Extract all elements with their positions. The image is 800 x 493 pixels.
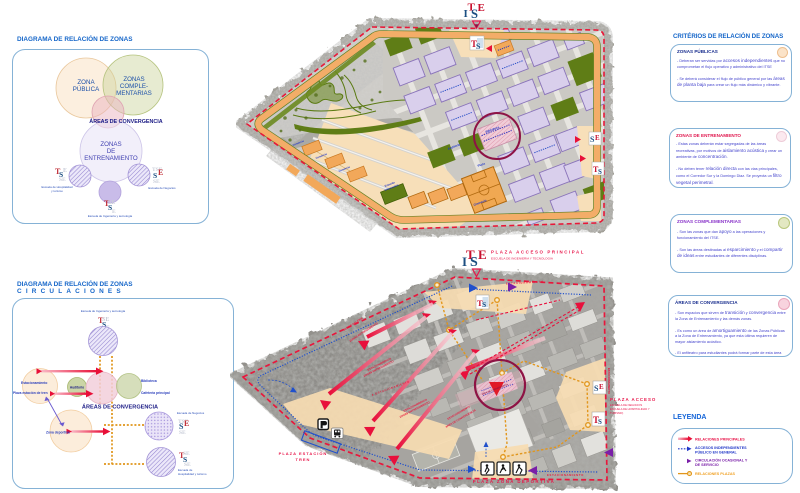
svg-text:PLAZA ACCESO: PLAZA ACCESO — [610, 397, 656, 402]
svg-text:DE SERVICIO: DE SERVICIO — [695, 463, 719, 467]
svg-text:ESCUELA DE NEGOCIOS: ESCUELA DE NEGOCIOS — [610, 403, 642, 407]
svg-text:RELACIONES PRINCIPALES: RELACIONES PRINCIPALES — [695, 438, 745, 442]
svg-text:Escuela de Ingeniería y tecnol: Escuela de Ingeniería y tecnología — [81, 309, 126, 313]
svg-text:S: S — [598, 418, 602, 426]
svg-text:Escuela de Negocios: Escuela de Negocios — [177, 411, 205, 415]
svg-text:Estacionamiento: Estacionamiento — [21, 381, 47, 385]
svg-text:ESTACIONAMIENTO: ESTACIONAMIENTO — [607, 368, 611, 394]
svg-text:SE: SE — [59, 177, 66, 183]
svg-text:ACCESOS INDEPENDIENTES: ACCESOS INDEPENDIENTES — [695, 446, 747, 450]
svg-text:Auditorio: Auditorio — [70, 386, 84, 390]
svg-text:ÁREAS DE CONVERGENCIA: ÁREAS DE CONVERGENCIA — [89, 118, 162, 125]
svg-text:ESCUELA DE INGENIERIA Y TECNOL: ESCUELA DE INGENIERIA Y TECNOLOGIA — [491, 257, 554, 261]
svg-text:PLAZA ESTACIÓN: PLAZA ESTACIÓN — [279, 451, 328, 456]
svg-text:Hospitalidad y turismo: Hospitalidad y turismo — [178, 472, 207, 476]
svg-text:Escuela de Ingeniería y tecnol: Escuela de Ingeniería y tecnología — [88, 214, 133, 218]
svg-text:E: E — [158, 168, 163, 177]
svg-text:MENTARIAS: MENTARIAS — [116, 90, 152, 97]
svg-text:SE: SE — [153, 179, 160, 185]
svg-text:E S T A C I O N A M I E N T O: E S T A C I O N A M I E N T O — [547, 473, 583, 477]
svg-text:ÁREAS DE CONVERGENCIA: ÁREAS DE CONVERGENCIA — [82, 404, 158, 411]
svg-text:Escuela de Negocios: Escuela de Negocios — [148, 186, 176, 190]
svg-text:E: E — [478, 247, 487, 262]
svg-text:PLAZA ZONA DEPORTIVA: PLAZA ZONA DEPORTIVA — [473, 479, 555, 484]
svg-text:ENTRENAMIENTO: ENTRENAMIENTO — [84, 155, 138, 162]
svg-text:Cafeteria principal: Cafeteria principal — [141, 391, 170, 395]
svg-text:E: E — [184, 419, 189, 428]
svg-text:ZONAS: ZONAS — [123, 76, 144, 83]
svg-text:PLAZA ACCESO PRINCIPAL: PLAZA ACCESO PRINCIPAL — [491, 250, 585, 255]
svg-text:TURISMO): TURISMO) — [610, 411, 623, 415]
svg-text:S: S — [482, 300, 486, 309]
svg-text:E: E — [63, 168, 67, 174]
svg-text:TREN: TREN — [296, 457, 311, 462]
svg-text:COMPLE-: COMPLE- — [120, 83, 148, 90]
svg-text:SE: SE — [179, 430, 186, 436]
svg-text:DE: DE — [107, 148, 116, 155]
svg-text:ZONAS: ZONAS — [100, 141, 121, 148]
svg-text:Zona deportiva: Zona deportiva — [46, 431, 70, 435]
svg-text:ZONA: ZONA — [77, 79, 95, 86]
svg-text:S: S — [476, 42, 481, 51]
svg-text:S: S — [470, 255, 478, 270]
svg-text:ESCUELA DE HOSPITALIDAD Y: ESCUELA DE HOSPITALIDAD Y — [610, 407, 650, 411]
svg-text:E: E — [478, 2, 485, 14]
svg-text:PÚBLICO EN GENERAL: PÚBLICO EN GENERAL — [695, 449, 738, 454]
svg-text:PÚBLICA: PÚBLICA — [73, 86, 100, 93]
svg-text:RELACIONES PLAZAS: RELACIONES PLAZAS — [695, 472, 735, 476]
svg-text:y turismo: y turismo — [51, 189, 63, 193]
svg-text:CIRCULACIÓN OCASIONAL Y: CIRCULACIÓN OCASIONAL Y — [695, 457, 748, 462]
svg-text:Plaza estación de tren: Plaza estación de tren — [13, 391, 48, 395]
svg-text:S: S — [598, 168, 602, 176]
svg-text:E: E — [599, 383, 604, 391]
svg-text:E: E — [595, 134, 600, 142]
svg-text:Biblioteca: Biblioteca — [141, 379, 157, 383]
